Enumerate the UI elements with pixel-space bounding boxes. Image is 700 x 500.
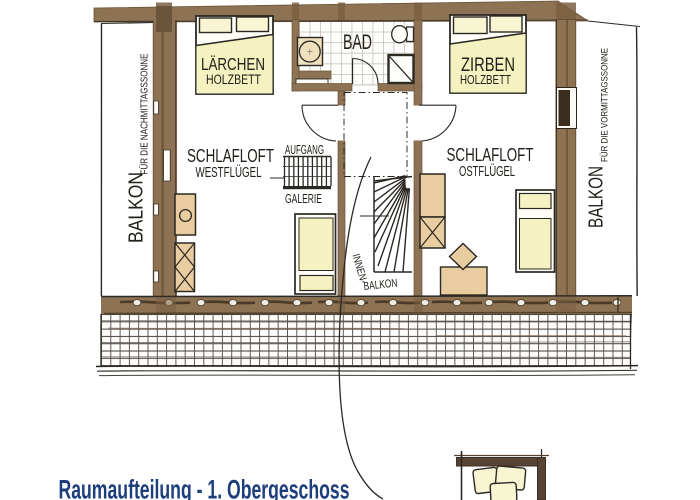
svg-text:HOLZBETT: HOLZBETT	[460, 72, 511, 87]
svg-text:LÄRCHEN: LÄRCHEN	[201, 54, 265, 74]
svg-text:WESTFLÜGEL: WESTFLÜGEL	[196, 163, 262, 181]
svg-text:BALKON: BALKON	[586, 166, 608, 228]
svg-text:SCHLAFLOFT: SCHLAFLOFT	[187, 145, 274, 166]
svg-text:HOLZBETT: HOLZBETT	[206, 72, 261, 87]
svg-text:BALKON: BALKON	[126, 172, 148, 243]
svg-text:SCHLAFLOFT: SCHLAFLOFT	[447, 144, 534, 165]
svg-text:GALERIE: GALERIE	[285, 192, 322, 206]
svg-text:Raumaufteilung - 1. Obergescho: Raumaufteilung - 1. Obergeschoss	[59, 475, 350, 500]
svg-text:FÜR DIE NACHMITTAGSSONNE: FÜR DIE NACHMITTAGSSONNE	[138, 53, 150, 174]
svg-text:FÜR DIE VORMITTAGSSONNE: FÜR DIE VORMITTAGSSONNE	[599, 48, 610, 162]
svg-text:BAD: BAD	[343, 31, 372, 54]
svg-text:AUFGANG: AUFGANG	[285, 143, 324, 157]
svg-text:OSTFLÜGEL: OSTFLÜGEL	[459, 162, 515, 180]
